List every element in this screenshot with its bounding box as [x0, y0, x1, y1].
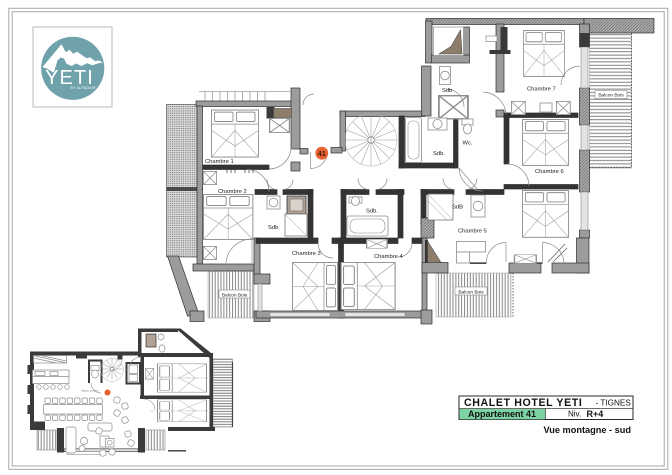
svg-text:Wc.: Wc. — [463, 141, 473, 147]
svg-text:- TIGNES: - TIGNES — [596, 399, 632, 408]
svg-text:Chambre 7: Chambre 7 — [527, 87, 556, 93]
svg-text:Balcon Bois: Balcon Bois — [222, 293, 248, 299]
svg-text:Balcon Bois: Balcon Bois — [458, 290, 484, 296]
svg-text:Chambre 1: Chambre 1 — [205, 159, 234, 165]
svg-text:Chambre 4: Chambre 4 — [374, 254, 403, 260]
svg-text:CHALET HOTEL YETI: CHALET HOTEL YETI — [464, 397, 582, 409]
svg-text:Chambre 3: Chambre 3 — [292, 251, 321, 257]
svg-text:Séjour cuisine: Séjour cuisine — [81, 389, 99, 393]
svg-text:Sdb: Sdb — [268, 225, 278, 231]
svg-text:R+4: R+4 — [587, 409, 604, 419]
svg-text:Vue montagne - sud: Vue montagne - sud — [544, 425, 631, 435]
svg-text:Chambre 2: Chambre 2 — [218, 189, 247, 195]
svg-text:Chambre 6: Chambre 6 — [535, 169, 564, 175]
svg-text:Chambre 5: Chambre 5 — [458, 229, 487, 235]
svg-text:Sdb: Sdb — [442, 88, 452, 94]
svg-text:Niv.: Niv. — [568, 410, 581, 419]
svg-text:BY ALPADAIR: BY ALPADAIR — [71, 86, 96, 90]
svg-text:Appartement 41: Appartement 41 — [468, 409, 536, 419]
svg-text:41: 41 — [318, 149, 326, 158]
svg-text:Balcon Bois: Balcon Bois — [598, 93, 624, 99]
svg-text:SdB: SdB — [452, 205, 463, 211]
svg-text:Sdb.: Sdb. — [366, 209, 378, 215]
svg-text:Sdb.: Sdb. — [433, 151, 445, 157]
